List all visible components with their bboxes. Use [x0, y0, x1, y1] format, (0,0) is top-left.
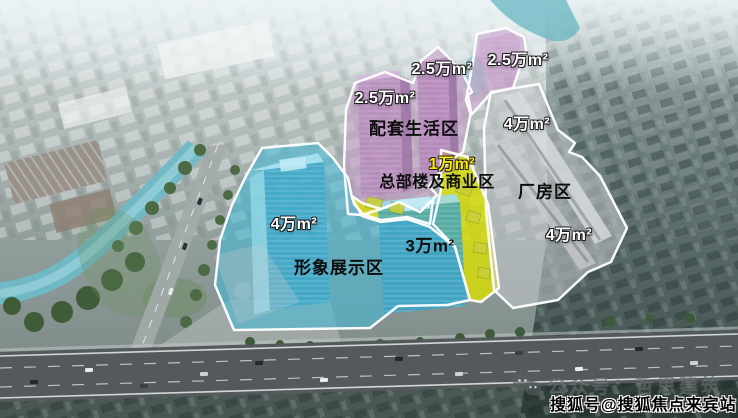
area-label-living-1: 2.5万m²: [355, 91, 416, 107]
aerial-photo-background: [0, 0, 738, 418]
area-label-display-2: 3万m²: [405, 238, 454, 255]
aerial-site-plan: 2.5万m² 2.5万m² 2.5万m² 配套生活区 1万m² 总部楼及商业区 …: [0, 0, 738, 418]
zone-name-living: 配套生活区: [369, 121, 459, 138]
area-label-hq: 1万m²: [429, 157, 475, 173]
zone-name-hq: 总部楼及商业区: [379, 175, 495, 191]
zone-name-display: 形象展示区: [294, 260, 384, 277]
area-label-factory-1: 4万m²: [504, 117, 550, 133]
sohu-watermark-text: 搜狐号@搜狐焦点来宾站: [550, 391, 737, 415]
zone-name-factory: 厂房区: [518, 184, 572, 201]
wechat-icon: [512, 372, 542, 398]
area-label-factory-2: 4万m²: [546, 228, 592, 244]
area-label-living-2: 2.5万m²: [412, 62, 473, 78]
area-label-living-3: 2.5万m²: [488, 53, 549, 69]
area-label-display-1: 4万m²: [271, 217, 317, 233]
